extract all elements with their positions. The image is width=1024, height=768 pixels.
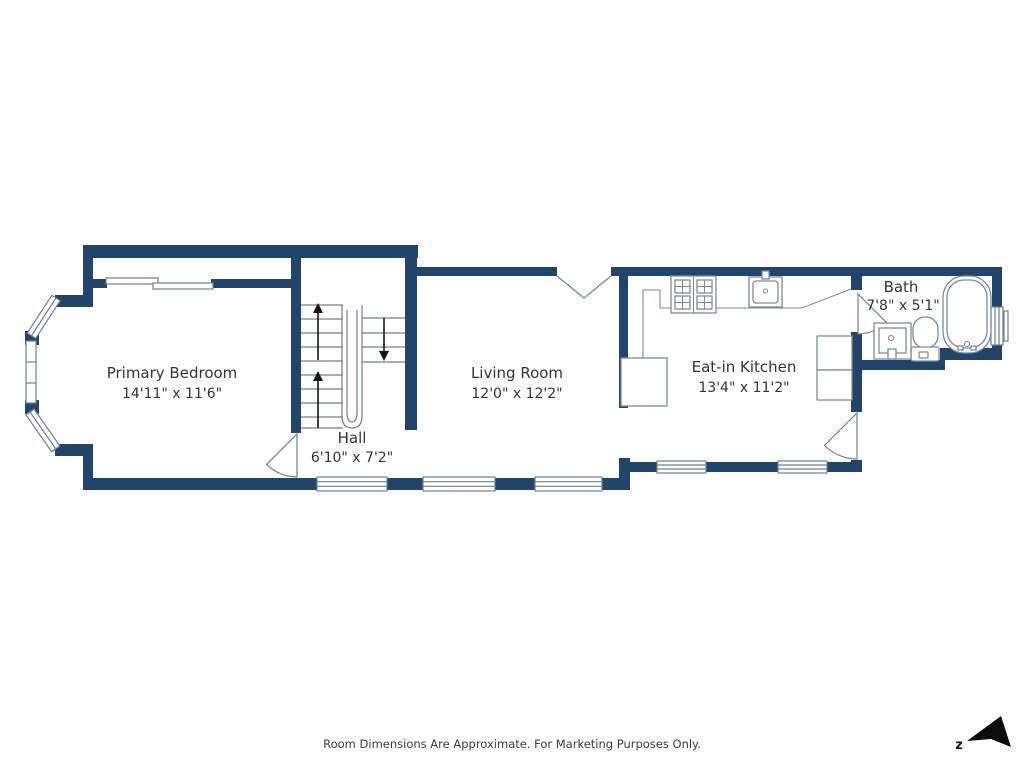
bedroom-door-swing-icon	[267, 434, 297, 477]
bath-window	[991, 307, 1008, 345]
kitchen-door-swing-icon	[825, 413, 858, 459]
living-room-double-door-icon	[557, 276, 611, 298]
stove-icon	[671, 276, 716, 313]
living-room-dimensions: 12'0" x 12'2"	[471, 386, 562, 402]
hall-name: Hall	[338, 429, 367, 447]
stair-direction-arrows	[313, 303, 389, 428]
sliding-door-icon	[106, 278, 213, 289]
stair-treads-left	[301, 305, 343, 428]
bath-name: Bath	[884, 278, 919, 296]
kitchen-window-right	[778, 461, 827, 473]
eat-in-kitchen-name: Eat-in Kitchen	[692, 358, 797, 376]
room-primary-bedroom: Primary Bedroom 14'11" x 11'6"	[107, 364, 238, 402]
hall-dimensions: 6'10" x 7'2"	[311, 450, 393, 466]
bath-sink-icon	[874, 323, 911, 359]
primary-bedroom-name: Primary Bedroom	[107, 364, 238, 382]
bath-dimensions: 7'8" x 5'1"	[866, 298, 939, 314]
living-room-window-right	[535, 477, 602, 491]
floor-plan-drawing: Primary Bedroom 14'11" x 11'6" Hall 6'10…	[0, 0, 1024, 768]
kitchen-window-left	[657, 461, 706, 473]
room-hall: Hall 6'10" x 7'2"	[311, 429, 393, 466]
hall-window	[317, 477, 387, 491]
living-room-name: Living Room	[471, 364, 563, 382]
room-eat-in-kitchen: Eat-in Kitchen 13'4" x 11'2"	[692, 358, 797, 396]
room-living-room: Living Room 12'0" x 12'2"	[471, 364, 563, 402]
north-arrow-icon: z	[955, 716, 1011, 753]
bay-window-icon	[26, 295, 60, 451]
disclaimer-text: Room Dimensions Are Approximate. For Mar…	[323, 737, 701, 751]
compass-north-label: z	[955, 738, 963, 753]
living-room-window-left	[423, 477, 495, 491]
bathtub-icon	[943, 276, 991, 353]
stair-rail	[342, 305, 362, 428]
primary-bedroom-dimensions: 14'11" x 11'6"	[122, 386, 222, 402]
kitchen-cabinets	[817, 336, 852, 400]
kitchen-sink-icon	[749, 271, 782, 307]
eat-in-kitchen-dimensions: 13'4" x 11'2"	[698, 380, 789, 396]
room-bath: Bath 7'8" x 5'1"	[866, 278, 939, 314]
floor-plan-page: Primary Bedroom 14'11" x 11'6" Hall 6'10…	[0, 0, 1024, 768]
toilet-icon	[911, 317, 939, 361]
room-labels: Primary Bedroom 14'11" x 11'6" Hall 6'10…	[107, 278, 940, 466]
stairs-icon	[301, 303, 405, 428]
chimney-box	[621, 358, 667, 406]
